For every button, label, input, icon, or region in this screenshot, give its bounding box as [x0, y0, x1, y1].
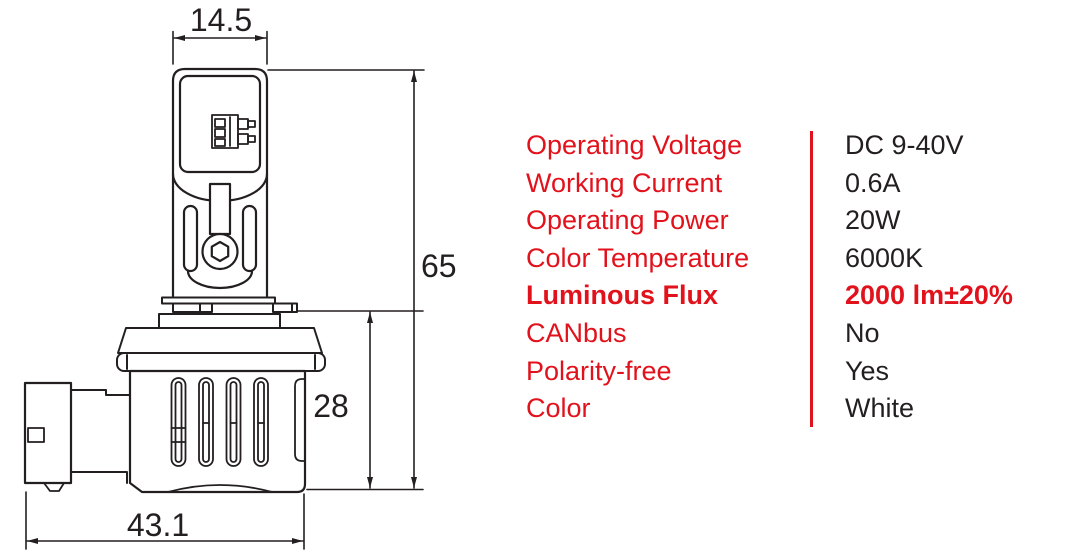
- spec-value-color: White: [845, 390, 1013, 428]
- spec-values-column: DC 9-40V 0.6A 20W 6000K 2000 lm±20% No Y…: [845, 127, 1013, 428]
- arrowhead-up-icon: [411, 71, 417, 82]
- bulb-base: [117, 298, 325, 372]
- spec-label-luminous-flux: Luminous Flux: [526, 277, 749, 315]
- spec-value-operating-voltage: DC 9-40V: [845, 127, 1013, 165]
- arrowhead-down-icon: [411, 477, 417, 488]
- dim-label-total-height: 65: [421, 248, 457, 284]
- spec-label-operating-voltage: Operating Voltage: [526, 127, 749, 165]
- arrowhead-up-icon: [367, 312, 373, 323]
- spec-label-color: Color: [526, 390, 749, 428]
- spec-label-working-current: Working Current: [526, 165, 749, 203]
- flange: [117, 353, 325, 371]
- heatsink: [130, 371, 305, 492]
- spec-divider-line: [810, 131, 813, 427]
- spec-label-polarity-free: Polarity-free: [526, 353, 749, 391]
- spec-labels-column: Operating Voltage Working Current Operat…: [526, 127, 749, 428]
- spec-value-luminous-flux: 2000 lm±20%: [845, 277, 1013, 315]
- connector-plug: [25, 383, 130, 491]
- arrowhead-left-icon: [27, 538, 38, 544]
- spec-label-operating-power: Operating Power: [526, 202, 749, 240]
- arrowhead-right-icon: [292, 538, 303, 544]
- spec-value-working-current: 0.6A: [845, 165, 1013, 203]
- dim-label-top-width: 14.5: [190, 2, 252, 38]
- base-trapezoid: [118, 328, 322, 353]
- spec-label-canbus: CANbus: [526, 315, 749, 353]
- spec-value-polarity-free: Yes: [845, 353, 1013, 391]
- dim-label-total-length: 43.1: [127, 507, 189, 543]
- spec-sheet: 14.5 65 28 43.1 Operating Voltage Workin…: [0, 0, 1072, 558]
- spec-label-color-temperature: Color Temperature: [526, 240, 749, 278]
- spec-value-canbus: No: [845, 315, 1013, 353]
- arrowhead-down-icon: [367, 477, 373, 488]
- dim-label-body-height: 28: [313, 388, 349, 424]
- spec-value-color-temperature: 6000K: [845, 240, 1013, 278]
- arrowhead-right-icon: [255, 35, 266, 41]
- arrowhead-left-icon: [174, 35, 185, 41]
- spec-value-operating-power: 20W: [845, 202, 1013, 240]
